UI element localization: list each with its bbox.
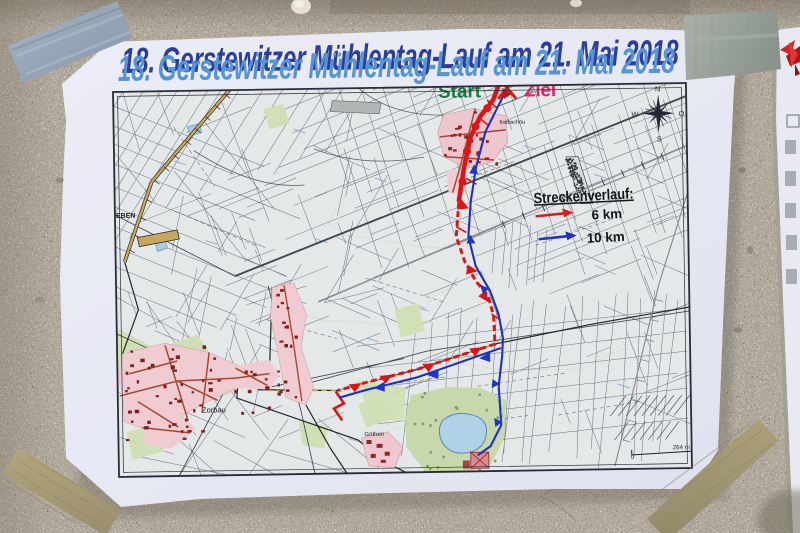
svg-text:10 km: 10 km — [586, 229, 625, 246]
svg-text:Göthen: Göthen — [364, 432, 384, 438]
svg-text:W: W — [631, 110, 639, 119]
svg-text:EBEN: EBEN — [116, 213, 136, 220]
svg-text:Keibschöu: Keibschöu — [499, 120, 525, 126]
svg-text:6 km: 6 km — [591, 206, 622, 223]
svg-text:N: N — [655, 84, 661, 93]
svg-text:18. Gerstewitzer Mühlentag-Lau: 18. Gerstewitzer Mühlentag-Lauf am 21. M… — [118, 40, 676, 89]
svg-text:S: S — [657, 134, 662, 143]
svg-text:O: O — [678, 109, 684, 118]
svg-text:Zorbau: Zorbau — [202, 405, 226, 414]
